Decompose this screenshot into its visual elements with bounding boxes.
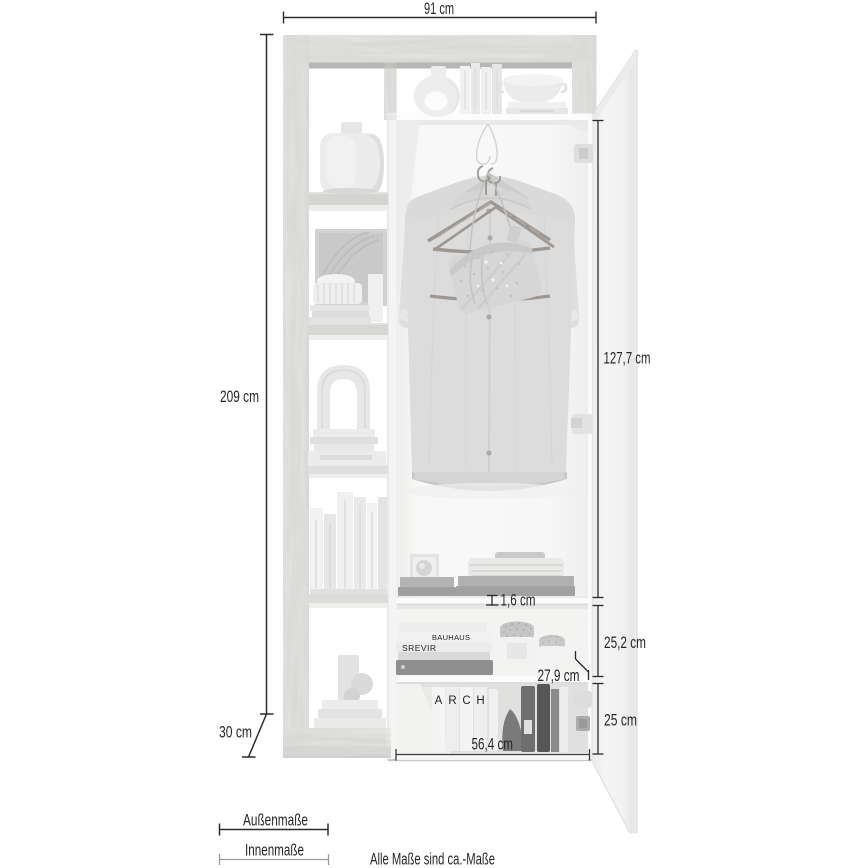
svg-text:25 cm: 25 cm [604, 711, 637, 730]
svg-text:SREVIR: SREVIR [402, 643, 436, 653]
svg-text:Innenmaße: Innenmaße [245, 841, 304, 860]
svg-text:91 cm: 91 cm [424, 0, 454, 18]
svg-text:C: C [462, 695, 470, 707]
svg-text:1,6 cm: 1,6 cm [501, 591, 536, 610]
svg-text:Außenmaße: Außenmaße [243, 811, 308, 830]
svg-text:Alle Maße sind ca.-Maße: Alle Maße sind ca.-Maße [370, 850, 495, 868]
svg-text:A: A [435, 695, 443, 707]
svg-text:BAUHAUS: BAUHAUS [432, 633, 470, 642]
svg-text:209 cm: 209 cm [220, 387, 259, 406]
svg-text:56,4 cm: 56,4 cm [472, 735, 514, 754]
svg-text:R: R [448, 695, 456, 707]
svg-text:30 cm: 30 cm [219, 723, 252, 742]
svg-text:25,2 cm: 25,2 cm [604, 633, 646, 652]
svg-text:27,9 cm: 27,9 cm [538, 666, 580, 685]
svg-text:127,7 cm: 127,7 cm [604, 349, 651, 368]
svg-text:H: H [476, 695, 484, 707]
